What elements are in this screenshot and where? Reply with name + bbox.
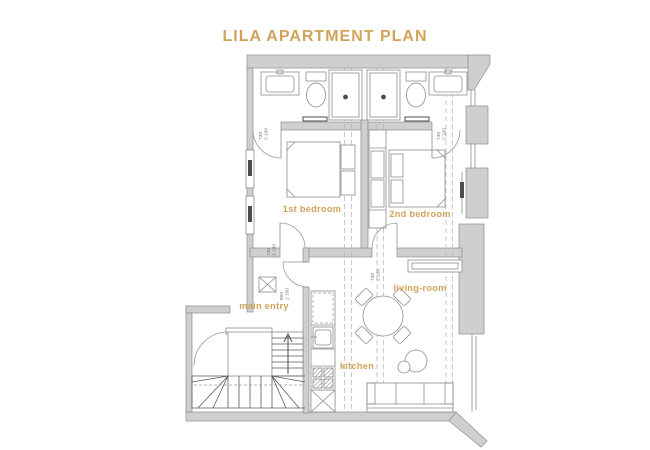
stair-landing [228,332,272,376]
bedroom-1 [287,142,355,197]
wall-hall-kitchen-lower [303,287,309,413]
base-cabinet-x-icon [311,390,335,412]
window-bedroom1-b [246,196,254,234]
window-bedroom1-a [246,150,254,188]
dim-bath2-door: 730 2 100 [436,128,448,140]
wall-bottom-right-chamfer [449,412,487,447]
wall-bedrooms-bottom-b [305,248,372,257]
svg-text:730: 730 [370,273,376,281]
shower-2-icon [367,70,400,120]
shower-1-icon [329,70,362,120]
wall-top [247,55,468,68]
dim-bedroom2-door: 730 2 100 [370,269,382,281]
bathroom-1 [261,70,362,120]
sink-2-icon [429,70,467,95]
kitchen-counter [311,291,335,412]
wall-bedroom-divider [361,120,368,248]
stair-winders [192,376,305,408]
shaft-box [259,277,276,292]
console-shelf-icon [408,260,462,272]
wall-hall-kitchen-upper [303,248,309,262]
bathroom-2 [367,70,467,120]
svg-text:2 100: 2 100 [272,244,278,256]
label-bedroom1: 1st bedroom [283,204,341,214]
window-right-b [471,144,475,168]
bed-1-icon [287,142,355,197]
wall-right-b [466,106,488,144]
svg-text:2 100: 2 100 [264,128,270,140]
window-bedroom2 [460,172,464,214]
sink-1-icon [261,70,299,95]
label-kitchen: kitchen [340,361,374,371]
svg-text:2 100: 2 100 [285,288,291,300]
svg-text:730: 730 [436,132,442,140]
label-main-entry: main entry [239,301,289,311]
dining-table-icon [355,288,411,344]
floor-plan-drawing: 1st bedroom 2nd bedroom main entry livin… [0,0,650,450]
dim-bedroom1-door: 730 2 100 [266,244,278,256]
svg-text:2 100: 2 100 [376,269,382,281]
wall-bath-partition-left [281,122,361,130]
wall-top-right-chamfer [468,55,490,90]
bath2-threshold [405,117,429,121]
hall-living-door [283,262,308,287]
wall-bath-partition-right [368,122,432,130]
dim-bath1-door: 730 2 100 [258,128,270,140]
sofa-icon [367,383,453,412]
toilet-2-icon [406,72,426,107]
toilet-1-icon [306,72,326,107]
bath1-threshold [303,117,327,121]
apartment-plan-page: LILA APARTMENT PLAN [0,0,650,450]
wall-stair-top-stub [186,306,230,313]
window-living-glass [472,334,476,412]
staircase [192,332,305,408]
label-living-room: living-room [393,283,446,293]
wall-bottom [186,412,456,421]
bed-2-icon [389,150,445,207]
svg-text:2 100: 2 100 [442,128,448,140]
wall-right-c [466,168,488,218]
svg-text:730: 730 [266,248,272,256]
wardrobe-icon [369,130,386,228]
wall-stair-left [186,306,192,412]
svg-text:730: 730 [258,132,264,140]
wall-right-living [459,224,484,334]
wall-left [247,68,253,312]
pouf-icon [398,350,427,373]
dim-hall-living-door: 800 2 100 [279,288,291,300]
bedroom1-door [280,223,305,248]
svg-text:800: 800 [279,292,285,300]
window-right-a [471,90,475,106]
label-bedroom2: 2nd bedroom [389,209,451,219]
